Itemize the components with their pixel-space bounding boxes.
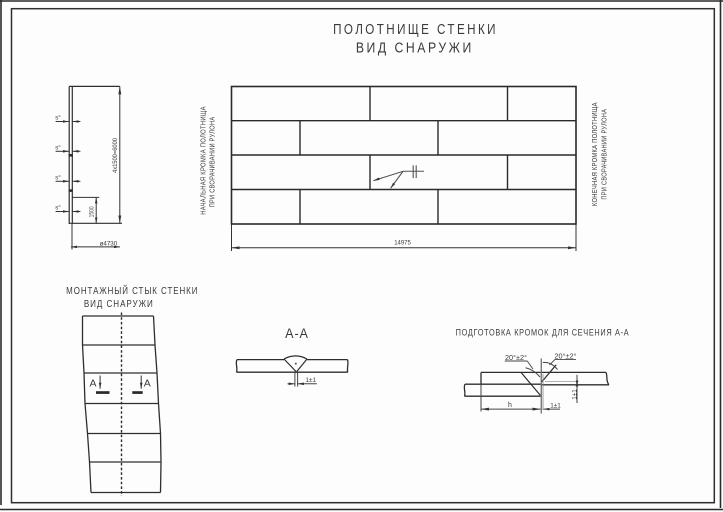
svg-text:1±1: 1±1 xyxy=(550,404,561,410)
svg-text:20°±2°: 20°±2° xyxy=(505,353,527,362)
svg-text:1±1: 1±1 xyxy=(306,378,317,384)
svg-text:МОНТАЖНЫЙ СТЫК СТЕНКИ: МОНТАЖНЫЙ СТЫК СТЕНКИ xyxy=(66,284,198,296)
svg-text:s°: s° xyxy=(55,144,61,151)
svg-text:s°: s° xyxy=(55,174,61,181)
svg-text:1±1: 1±1 xyxy=(572,389,578,400)
svg-text:h: h xyxy=(508,402,512,409)
svg-text:14975: 14975 xyxy=(394,241,411,247)
svg-text:А: А xyxy=(144,377,151,389)
svg-text:ВИД СНАРУЖИ: ВИД СНАРУЖИ xyxy=(84,298,154,309)
svg-text:4x1500=6000: 4x1500=6000 xyxy=(112,138,119,173)
svg-text:КОНЕЧНАЯ КРОМКА ПОЛОТНИЩА: КОНЕЧНАЯ КРОМКА ПОЛОТНИЩА xyxy=(591,102,599,206)
svg-text:НАЧАЛЬНАЯ КРОМКА ПОЛОТНИЩА: НАЧАЛЬНАЯ КРОМКА ПОЛОТНИЩА xyxy=(200,106,208,215)
svg-text:ПРИ СВОРАЧИВАНИИ РУЛОНА: ПРИ СВОРАЧИВАНИИ РУЛОНА xyxy=(209,116,217,207)
svg-text:1500: 1500 xyxy=(88,206,95,217)
svg-text:ВИД СНАРУЖИ: ВИД СНАРУЖИ xyxy=(356,40,474,56)
svg-text:А-А: А-А xyxy=(285,326,309,342)
svg-text:ø4730: ø4730 xyxy=(100,240,118,247)
svg-text:А: А xyxy=(90,377,97,389)
svg-text:s°: s° xyxy=(55,205,61,212)
svg-text:ПОДГОТОВКА КРОМОК ДЛЯ СЕЧЕНИЯ: ПОДГОТОВКА КРОМОК ДЛЯ СЕЧЕНИЯ А-А xyxy=(456,326,630,337)
svg-text:ПОЛОТНИЩЕ СТЕНКИ: ПОЛОТНИЩЕ СТЕНКИ xyxy=(333,21,498,38)
svg-text:ПРИ СВОРАЧИВАНИИ РУЛОНА: ПРИ СВОРАЧИВАНИИ РУЛОНА xyxy=(601,108,609,199)
svg-text:s°: s° xyxy=(55,115,61,122)
